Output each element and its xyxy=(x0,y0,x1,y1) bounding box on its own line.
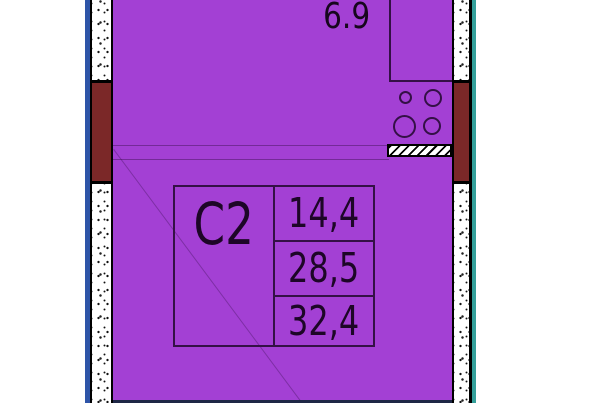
area-cell-2: 28,5 xyxy=(273,240,375,297)
area-value-1: 14,4 xyxy=(288,193,359,234)
room-area-value: 6.9 xyxy=(324,0,371,36)
kitchen-counter-line xyxy=(389,80,452,82)
stove-burner-icon xyxy=(399,91,412,104)
area-value-2: 28,5 xyxy=(288,248,359,289)
area-cell-1: 14,4 xyxy=(273,185,375,242)
wall-left xyxy=(90,0,113,403)
stove-burner-icon xyxy=(424,89,442,107)
floorplan-canvas: 6.9 С2 14,4 28,5 32,4 xyxy=(0,0,605,403)
window-right xyxy=(454,80,469,184)
room-area-label: 6.9 xyxy=(312,0,382,36)
adjacent-boundary-right xyxy=(472,0,476,403)
kitchen-partition-line xyxy=(389,0,391,82)
stove-burner-icon xyxy=(423,117,441,135)
wall-right xyxy=(452,0,472,403)
zone-line-upper xyxy=(113,145,389,146)
window-left xyxy=(92,80,111,184)
adjacent-boundary-left xyxy=(85,0,90,403)
area-cell-3: 32,4 xyxy=(273,295,375,347)
zone-line-lower xyxy=(113,159,389,160)
vent-hatch-icon xyxy=(387,144,452,157)
area-value-3: 32,4 xyxy=(288,301,359,342)
stove-burner-icon xyxy=(393,115,416,138)
unit-type-label: С2 xyxy=(194,195,254,253)
unit-type-cell: С2 xyxy=(173,185,275,347)
